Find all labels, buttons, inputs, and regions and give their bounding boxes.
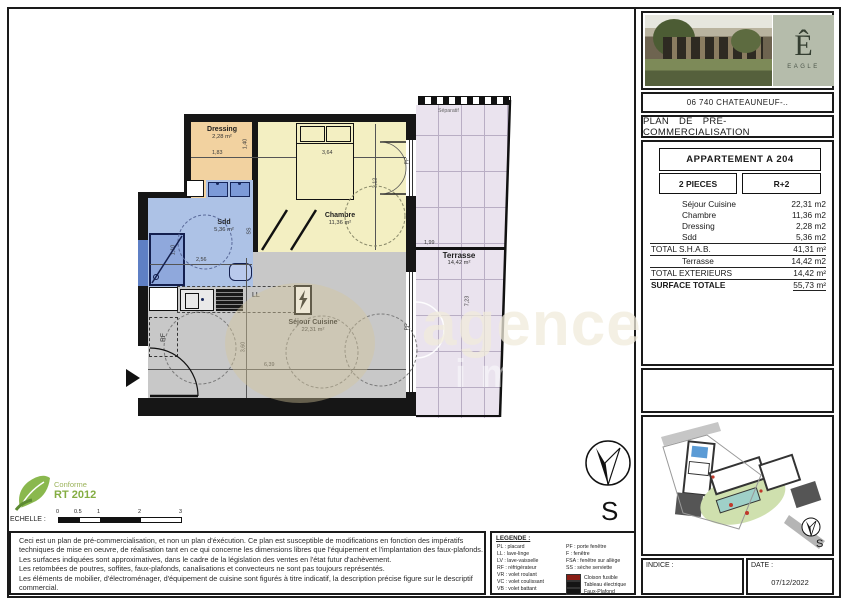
legend-box: LEGENDE : PL : placard LL : lave-linge L…: [490, 531, 636, 595]
apartment-info-section: APPARTEMENT A 204 2 PIECES R+2 Séjour Cu…: [641, 140, 834, 366]
table-row: Séjour Cuisine22,31 m2: [650, 199, 826, 210]
table-row-total-ext: TOTAL EXTERIEURS14,42 m²: [650, 268, 826, 280]
dim-chambre-width: 3,64: [322, 150, 333, 156]
dim-chambre-depth: 3,12: [372, 178, 378, 189]
legend-right-column: PF : porte fenêtre F : fenêtre FSA : fen…: [566, 544, 620, 572]
legend-swatch-cloison: Cloison fusible: [566, 574, 618, 581]
dim-dressing-depth: 1,40: [242, 139, 248, 150]
watermark-text: agence: [422, 290, 640, 360]
pf-label-chambre: PF: [404, 158, 410, 165]
site-compass-icon: S: [802, 518, 823, 550]
dim-sdd-width: 2,56: [196, 257, 207, 263]
apartment-name-box: APPARTEMENT A 204: [659, 148, 821, 171]
terrace-bottom-edge: [416, 415, 501, 417]
dim-terrasse-width: 1,99: [424, 240, 435, 246]
address-text: 06 740 CHATEAUNEUF-..: [687, 98, 789, 107]
scale-tick-3: 3: [179, 509, 182, 515]
scale-label: ECHELLE :: [10, 516, 46, 523]
apartment-level-box: R+2: [742, 173, 821, 194]
site-plan-map: S: [643, 417, 832, 554]
tree-shape-2: [731, 29, 761, 53]
table-row: Terrasse14,42 m2: [650, 256, 826, 268]
sink-right: [230, 182, 250, 197]
table-row-total-shab: TOTAL S.H.A.B.41,31 m²: [650, 244, 826, 256]
date-label: DATE :: [751, 562, 773, 569]
leaf-icon: [12, 474, 54, 512]
eagle-logo: Ê EAGLE: [773, 15, 834, 86]
ss-label: SS: [246, 228, 252, 235]
kitchen-sink: [180, 289, 214, 311]
watermark-circle: [225, 283, 375, 403]
apartment-pieces-box: 2 PIECES: [659, 173, 737, 194]
terrace-separator-line: [416, 247, 505, 250]
pf-label-sejour: PF: [404, 324, 410, 331]
indice-box: INDICE :: [641, 558, 744, 595]
surface-table: Séjour Cuisine22,31 m2 Chambre11,36 m2 D…: [650, 199, 826, 291]
legend-swatch-faux-plafond: Faux-Plafond: [566, 588, 615, 595]
scale-tick-0: 0: [56, 509, 59, 515]
kitchen-cabinet: [149, 287, 178, 311]
disclaimer-box: Ceci est un plan de pré-commercialisatio…: [9, 531, 486, 595]
label-sdd: Sdd 5,36 m²: [196, 219, 252, 234]
disclaimer-line: Les éléments de mobilier, d'électroménag…: [19, 574, 476, 583]
plan-title-text: PLAN DE PRE-COMMERCIALISATION: [643, 116, 832, 138]
site-plan-section: S: [641, 415, 834, 556]
label-terrasse: Terrasse 14,42 m²: [428, 252, 490, 267]
scale-tick-2: 2: [138, 509, 141, 515]
compass-south-letter: S: [601, 496, 618, 526]
table-row-surface-totale: SURFACE TOTALE55,73 m²: [650, 280, 826, 291]
date-box: DATE : 07/12/2022: [746, 558, 834, 595]
disclaimer-line: techniques de mise en oeuvre, de réalisa…: [19, 545, 476, 554]
toilet: [229, 263, 252, 281]
plan-sheet: LL RF Séparatif Dressing 2,28 m² Chambre…: [0, 0, 847, 601]
date-value: 07/12/2022: [748, 578, 832, 587]
fridge-box: RF: [149, 317, 178, 357]
disclaimer-line: Ceci est un plan de pré-commercialisatio…: [19, 536, 476, 545]
rt2012-logo: Conforme RT 2012: [12, 474, 122, 514]
label-chambre: Chambre 11,36 m²: [310, 212, 370, 227]
watermark-subtext: imm: [455, 352, 579, 396]
legend-swatch-tableau: Tableau électrique: [566, 581, 626, 588]
bathroom-vanity: [206, 180, 253, 198]
site-compass-letter: S: [816, 538, 823, 550]
compass-icon: S: [580, 436, 636, 528]
scale-tick-1: 1: [97, 509, 100, 515]
address-bar: 06 740 CHATEAUNEUF-..: [641, 92, 834, 113]
table-row: Chambre11,36 m2: [650, 210, 826, 221]
bay-window-sejour: [406, 272, 416, 392]
dim-sdd-depth: 1,10: [170, 245, 176, 256]
table-row: Dressing2,28 m2: [650, 221, 826, 232]
window-sdd: [138, 240, 148, 286]
entrance-arrow-icon: [126, 369, 140, 387]
table-row: Sdd5,36 m2: [650, 232, 826, 244]
disclaimer-line: Les surfaces indiquées sont approximativ…: [19, 555, 476, 564]
empty-section: [641, 368, 834, 413]
scale-tick-05: 0.5: [74, 509, 82, 515]
indice-label: INDICE :: [646, 562, 674, 569]
sink-left: [208, 182, 228, 197]
scale-bar: [58, 517, 182, 523]
pillow-right: [326, 126, 351, 142]
header-photo-section: Ê EAGLE: [641, 11, 834, 90]
wall-top: [184, 114, 416, 122]
dim-line-sdd: [150, 264, 252, 265]
separatif-label: Séparatif: [438, 108, 459, 114]
logo-mark: Ê: [794, 31, 812, 61]
legend-left-column: PL : placard LL : lave-linge LV : lave-v…: [497, 544, 544, 593]
building-rendering-photo: [645, 15, 772, 86]
disclaimer-line: commercial.: [19, 583, 476, 592]
disclaimer-line: Les retombées de poutres, soffites, faux…: [19, 564, 476, 573]
bed: [296, 123, 354, 200]
legend-title: LEGENDE :: [496, 535, 630, 542]
dim-dressing-width: 1,83: [212, 150, 223, 156]
duct-column: [186, 180, 204, 197]
logo-name: EAGLE: [787, 64, 820, 70]
terrace-railing: [418, 96, 511, 105]
shower: [149, 233, 185, 286]
plan-title-bar: PLAN DE PRE-COMMERCIALISATION: [641, 115, 834, 138]
french-door-chambre: [406, 140, 416, 196]
pillow-left: [300, 126, 325, 142]
